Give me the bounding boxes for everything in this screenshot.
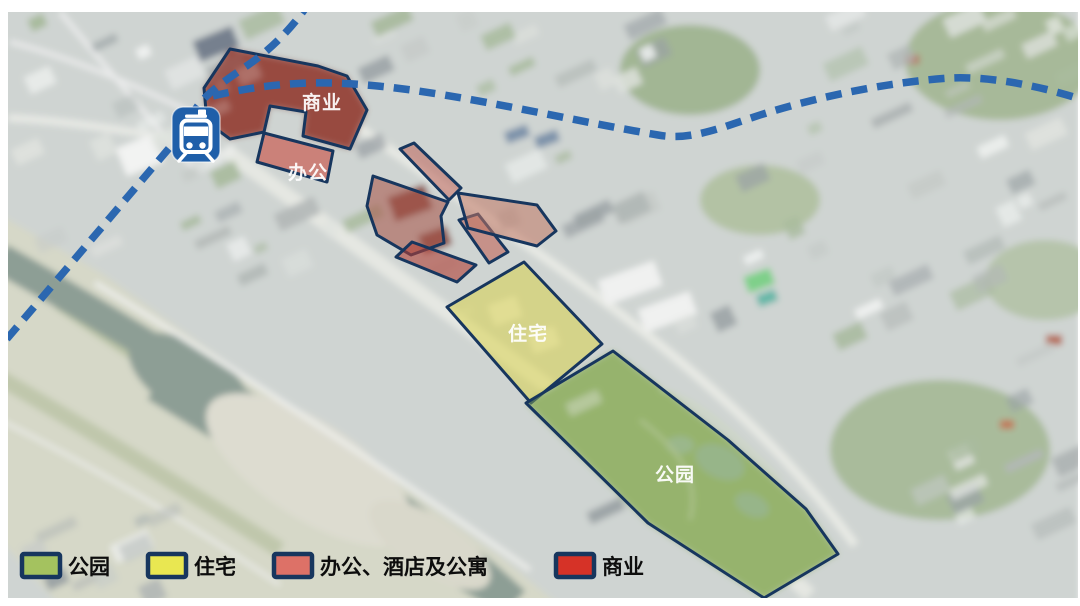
legend-label-commercial: 商业 — [602, 555, 644, 579]
zone-label-park: 公园 — [655, 464, 695, 486]
map-canvas: 商业 办公 住宅 公园 公园 住宅 办公、酒店及公寓 商业 — [0, 0, 1080, 606]
zone-label-residential: 住宅 — [508, 322, 548, 345]
legend-item-office-hotel-apartment: 办公、酒店及公寓 — [274, 554, 488, 579]
legend-swatch-park — [22, 554, 60, 577]
red-roof — [1000, 420, 1014, 429]
zone-label-office: 办公 — [288, 161, 328, 184]
legend-swatch-residential — [148, 554, 186, 577]
legend-label-park: 公园 — [68, 556, 110, 579]
legend-swatch-office-hotel-apartment — [274, 554, 312, 577]
forest-patch — [620, 25, 760, 115]
legend-label-office-hotel-apartment: 办公、酒店及公寓 — [320, 555, 488, 579]
legend-label-residential: 住宅 — [194, 555, 236, 579]
land-use-map: 商业 办公 住宅 公园 公园 住宅 办公、酒店及公寓 商业 — [0, 0, 1080, 606]
train-station-icon — [172, 107, 220, 162]
zone-label-commercial: 商业 — [302, 91, 342, 114]
legend-swatch-commercial — [556, 554, 594, 577]
